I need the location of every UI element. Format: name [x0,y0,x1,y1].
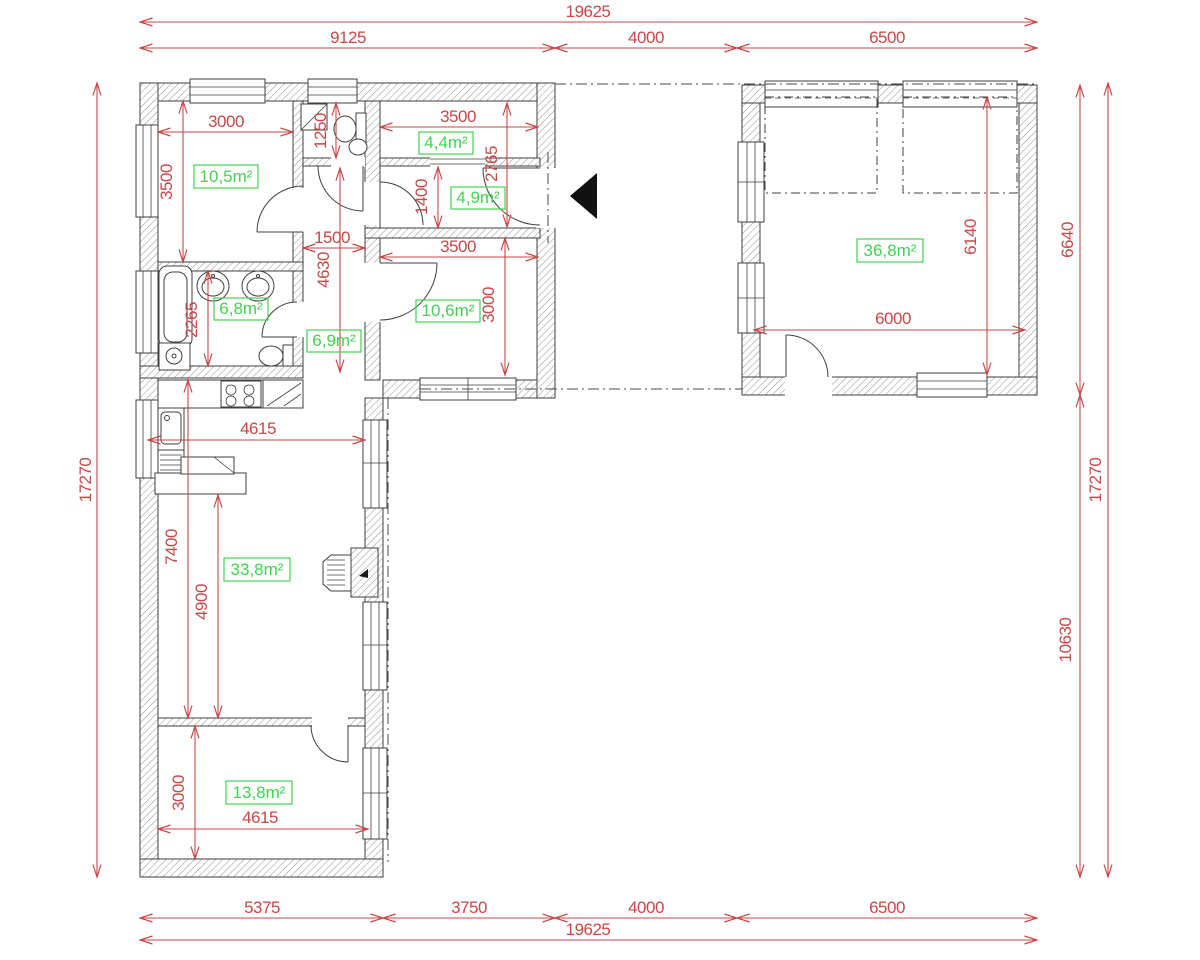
window-bath-left [136,271,158,353]
dim-right-lower: 10630 [1056,618,1075,663]
dim-wc-depth: 1250 [311,113,330,149]
area-label-hall: 6,9m² [307,330,361,352]
dim-right-upper: 6640 [1058,222,1077,258]
dim-bed2-width: 3500 [440,237,476,256]
garage-door-opening-2 [903,81,1017,107]
svg-text:10,6m²: 10,6m² [422,301,475,320]
area-label-bed1: 10,5m² [194,165,258,188]
floor-plan-drawing: 19625 9125 4000 6500 5375 3750 4000 6500… [0,0,1200,960]
window-kitchen-left [136,400,158,478]
area-label-living: 33,8m² [224,558,290,581]
dim-living-len2: 4900 [192,584,211,620]
dim-right-total: 17270 [1086,458,1105,503]
area-label-bath: 6,8m² [214,298,268,320]
dim-bath-depth: 2265 [182,302,201,338]
window-bedroom1-left [136,125,158,217]
area-label-entry: 4,9m² [451,187,505,209]
window-living-right-1 [363,420,387,508]
dim-garage-width: 6000 [875,309,911,328]
kitchen-sink-icon [158,408,184,450]
svg-text:6,8m²: 6,8m² [219,299,263,318]
dim-bed1-depth: 3500 [157,164,176,200]
area-label-bed2: 10,6m² [416,300,480,322]
area-label-storage: 4,4m² [419,132,473,154]
svg-text:4,9m²: 4,9m² [456,188,500,207]
dim-top-seg3: 6500 [869,28,905,47]
window-bedroom1-top [190,79,265,103]
window-garage-left-2 [738,263,764,333]
dim-entry-depth: 1400 [412,179,431,215]
svg-text:13,8m²: 13,8m² [233,783,286,802]
svg-text:6,9m²: 6,9m² [312,331,356,350]
floor-plan-page: 19625 9125 4000 6500 5375 3750 4000 6500… [0,0,1200,960]
window-bedroom3-right [363,748,387,839]
svg-text:10,5m²: 10,5m² [200,167,253,186]
sink-icon-wc [349,139,367,155]
dim-hall-width: 1500 [314,228,350,247]
dim-bed3-depth: 3000 [169,775,188,811]
dim-bottom-seg2: 3750 [451,898,487,917]
fridge-icon [263,380,303,408]
window-garage-bottom [917,373,987,397]
toilet-icon-bath [259,345,293,366]
dim-storage-entry-depth: 2765 [482,146,501,182]
sink-icon-bath-2 [242,271,274,301]
window-living-right-2 [363,602,387,690]
dim-top-seg2: 4000 [628,28,664,47]
svg-text:36,8m²: 36,8m² [864,241,917,260]
dim-living-len1: 7400 [162,529,181,565]
garage-side-door [786,335,828,377]
sink-icon-bath-1 [197,271,229,301]
garage-track-1 [765,97,877,193]
stove-icon [221,381,261,407]
dim-left-total: 17270 [76,458,95,503]
dim-kitchen-width: 4615 [240,419,276,438]
entrance-arrow-icon [570,173,597,219]
dim-overall-bottom: 19625 [566,920,611,939]
garage-track-2 [903,97,1017,193]
dim-storage-width: 3500 [440,107,476,126]
window-garage-left-1 [738,142,764,222]
dim-bed3-width: 4615 [242,808,278,827]
fixtures [155,97,1017,597]
area-label-bed3: 13,8m² [226,781,292,804]
svg-text:4,4m²: 4,4m² [424,133,468,152]
dim-bed2-depth: 3000 [479,287,498,323]
dim-hall-length: 4630 [314,252,333,288]
dim-bed1-width: 3000 [208,112,244,131]
dim-bottom-seg3: 4000 [628,898,664,917]
dim-bottom-seg4: 6500 [869,898,905,917]
dim-overall-top: 19625 [566,2,611,21]
dim-bottom-seg1: 5375 [244,898,280,917]
window-wc-top [308,79,357,103]
dim-top-seg1: 9125 [330,28,366,47]
washer-icon [159,343,190,370]
bedroom3-door [311,725,348,762]
area-label-garage: 36,8m² [857,239,923,262]
fireplace-icon [323,548,378,597]
garage-door-opening-1 [765,81,878,107]
dim-garage-depth: 6140 [961,219,980,255]
svg-text:33,8m²: 33,8m² [231,560,284,579]
